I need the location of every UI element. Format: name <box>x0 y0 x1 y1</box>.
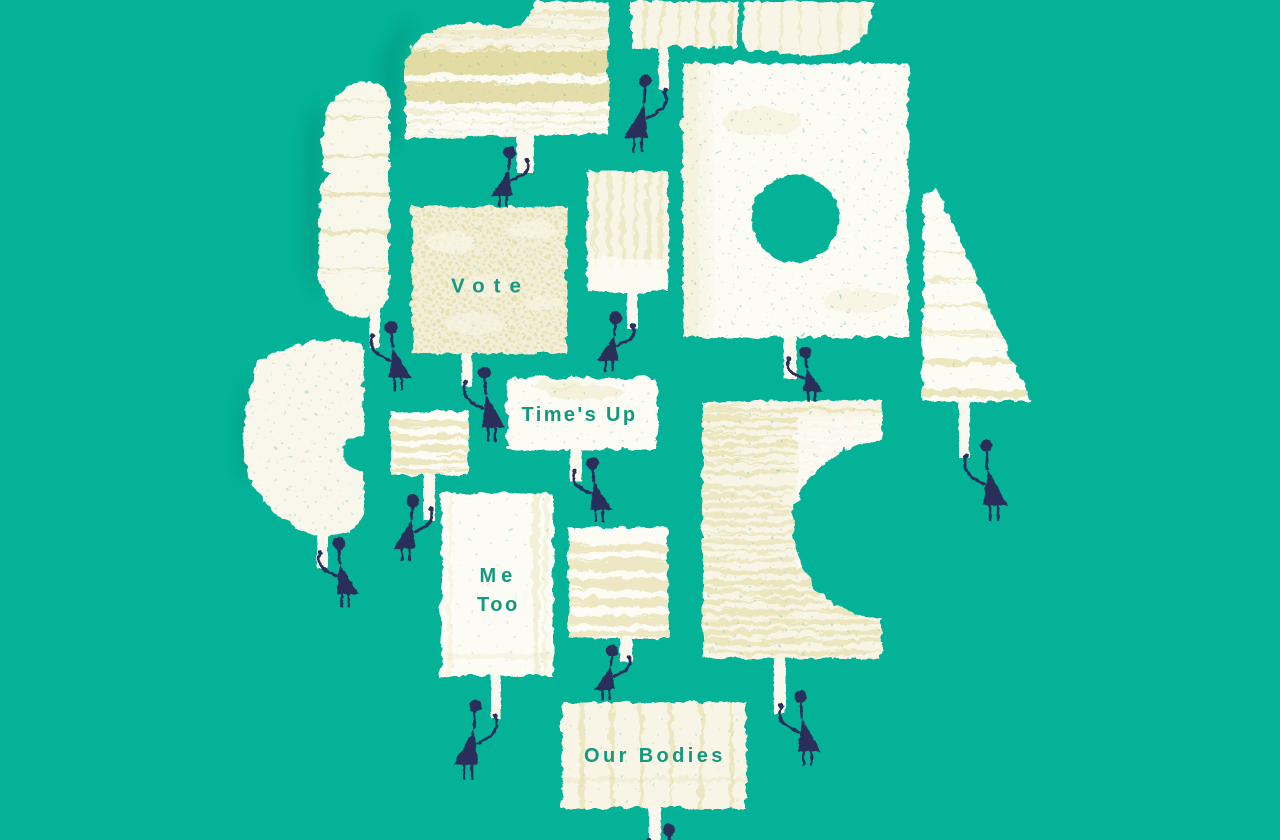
svg-text:Vote: Vote <box>451 275 530 298</box>
svg-text:Me: Me <box>480 565 518 587</box>
svg-text:Our Bodies: Our Bodies <box>584 745 726 767</box>
svg-text:Time's Up: Time's Up <box>522 404 638 426</box>
svg-text:Too: Too <box>477 594 520 616</box>
